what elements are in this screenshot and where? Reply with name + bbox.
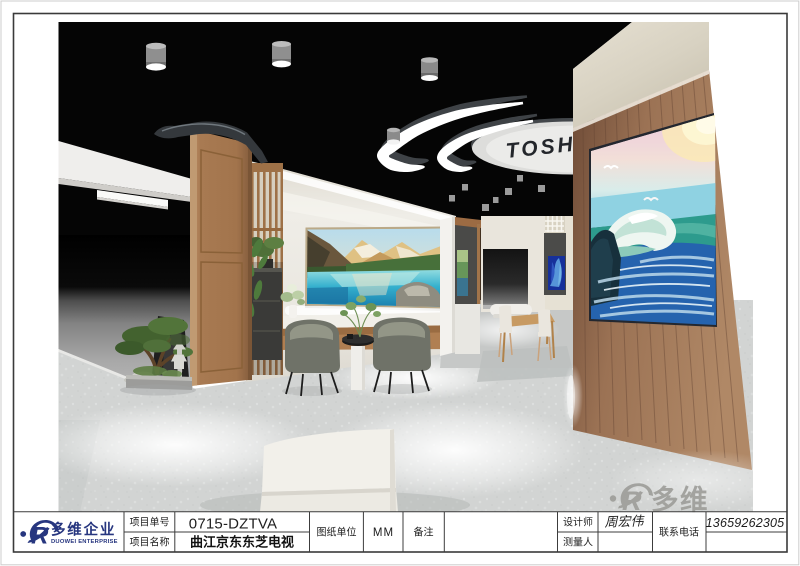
svg-text:13659262305: 13659262305 <box>706 516 785 530</box>
svg-text:多维企业: 多维企业 <box>51 521 116 539</box>
svg-text:DUOWEI ENTERPRISE: DUOWEI ENTERPRISE <box>51 539 118 545</box>
svg-text:周宏伟: 周宏伟 <box>604 513 645 529</box>
svg-text:曲江京东东芝电视: 曲江京东东芝电视 <box>190 535 294 550</box>
svg-text:测量人: 测量人 <box>563 536 593 549</box>
svg-text:多维: 多维 <box>651 484 709 515</box>
svg-text:R: R <box>31 523 49 550</box>
svg-text:项目名称: 项目名称 <box>130 536 170 549</box>
svg-text:项目单号: 项目单号 <box>130 517 170 529</box>
svg-text:MM: MM <box>373 527 394 539</box>
svg-text:备注: 备注 <box>414 526 434 539</box>
svg-text:图纸单位: 图纸单位 <box>317 526 357 539</box>
svg-text:设计师: 设计师 <box>563 516 593 529</box>
svg-text:0715-DZTVA: 0715-DZTVA <box>189 516 277 533</box>
svg-text:联系电话: 联系电话 <box>659 526 699 539</box>
